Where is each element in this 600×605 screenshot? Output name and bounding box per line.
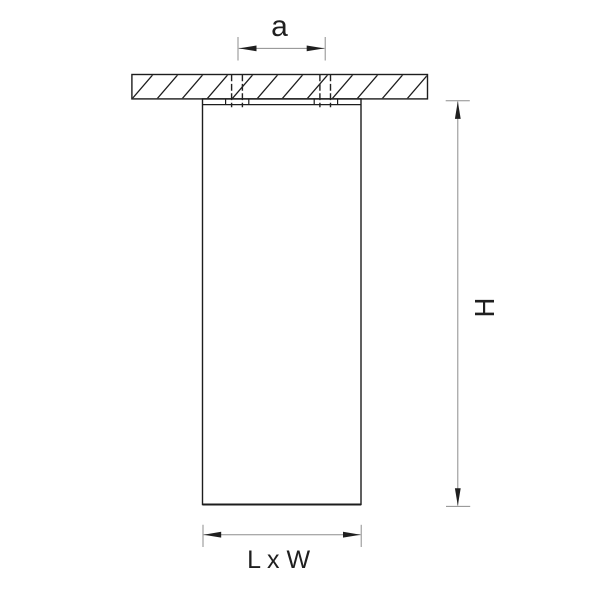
svg-text:H: H <box>469 298 500 318</box>
svg-text:L x W: L x W <box>247 546 310 574</box>
svg-text:a: a <box>271 10 288 43</box>
